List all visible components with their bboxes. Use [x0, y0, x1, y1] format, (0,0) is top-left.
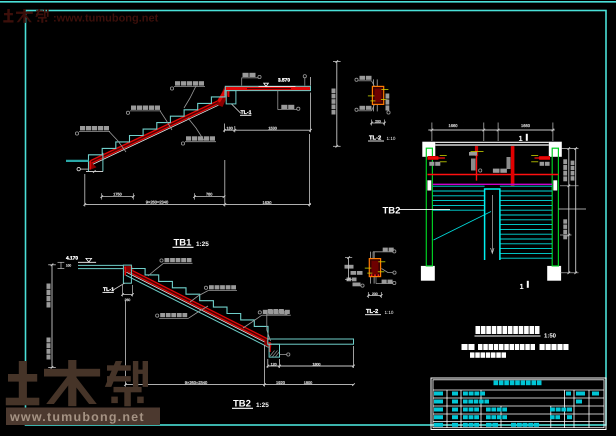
svg-text:1:50: 1:50 [544, 333, 557, 340]
svg-text::www.tumubong.net: :www.tumubong.net [53, 13, 159, 25]
svg-text:3.570: 3.570 [278, 78, 290, 84]
svg-text:1750: 1750 [113, 193, 121, 197]
svg-text:200: 200 [375, 119, 381, 123]
svg-text:TB2: TB2 [383, 206, 401, 217]
svg-text:www.tumubong.net: www.tumubong.net [9, 410, 145, 424]
svg-text:9×260=2340: 9×260=2340 [185, 380, 208, 385]
svg-text:1:10: 1:10 [387, 136, 396, 141]
svg-text:4.170: 4.170 [66, 256, 78, 262]
svg-text:1: 1 [519, 134, 523, 143]
svg-text:TL-2: TL-2 [369, 135, 381, 142]
svg-text:100: 100 [66, 263, 72, 267]
svg-text:1:10: 1:10 [385, 310, 394, 315]
svg-text:200: 200 [372, 292, 378, 296]
svg-text:1630: 1630 [263, 200, 273, 205]
svg-text:1660: 1660 [449, 123, 459, 128]
svg-text:780: 780 [206, 193, 212, 197]
svg-text:180: 180 [227, 126, 233, 130]
svg-text:1:25: 1:25 [196, 241, 209, 248]
svg-text:1920: 1920 [276, 380, 286, 385]
svg-text:120: 120 [271, 362, 277, 366]
svg-text:TL-2: TL-2 [366, 308, 378, 315]
svg-text:1: 1 [520, 282, 524, 291]
svg-text:1660: 1660 [521, 123, 531, 128]
svg-text:9×260=2340: 9×260=2340 [146, 200, 169, 205]
svg-text:1800: 1800 [304, 381, 312, 385]
svg-text:1530: 1530 [268, 126, 276, 130]
svg-text:1:25: 1:25 [256, 402, 269, 409]
svg-text:1800: 1800 [313, 362, 321, 366]
